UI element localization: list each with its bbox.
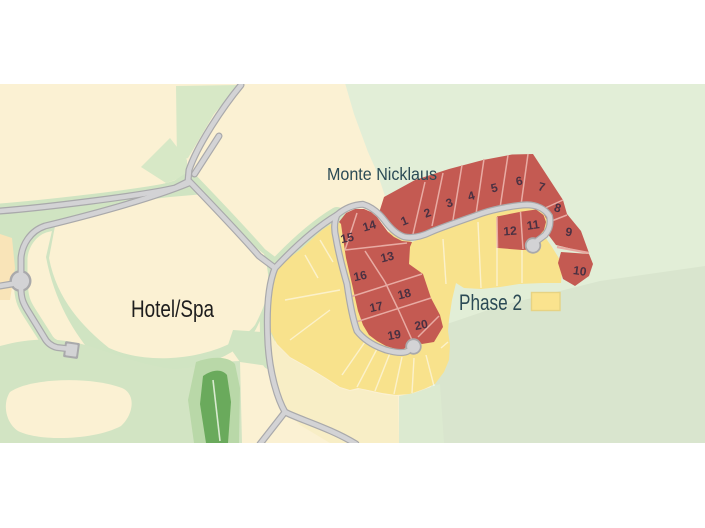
svg-text:12: 12 <box>503 224 518 239</box>
svg-text:19: 19 <box>386 327 402 343</box>
svg-text:Hotel/Spa: Hotel/Spa <box>131 296 215 323</box>
svg-text:11: 11 <box>526 217 541 233</box>
svg-text:Monte Nicklaus: Monte Nicklaus <box>327 164 437 184</box>
svg-text:Phase 2: Phase 2 <box>459 290 522 315</box>
svg-text:10: 10 <box>572 263 587 279</box>
